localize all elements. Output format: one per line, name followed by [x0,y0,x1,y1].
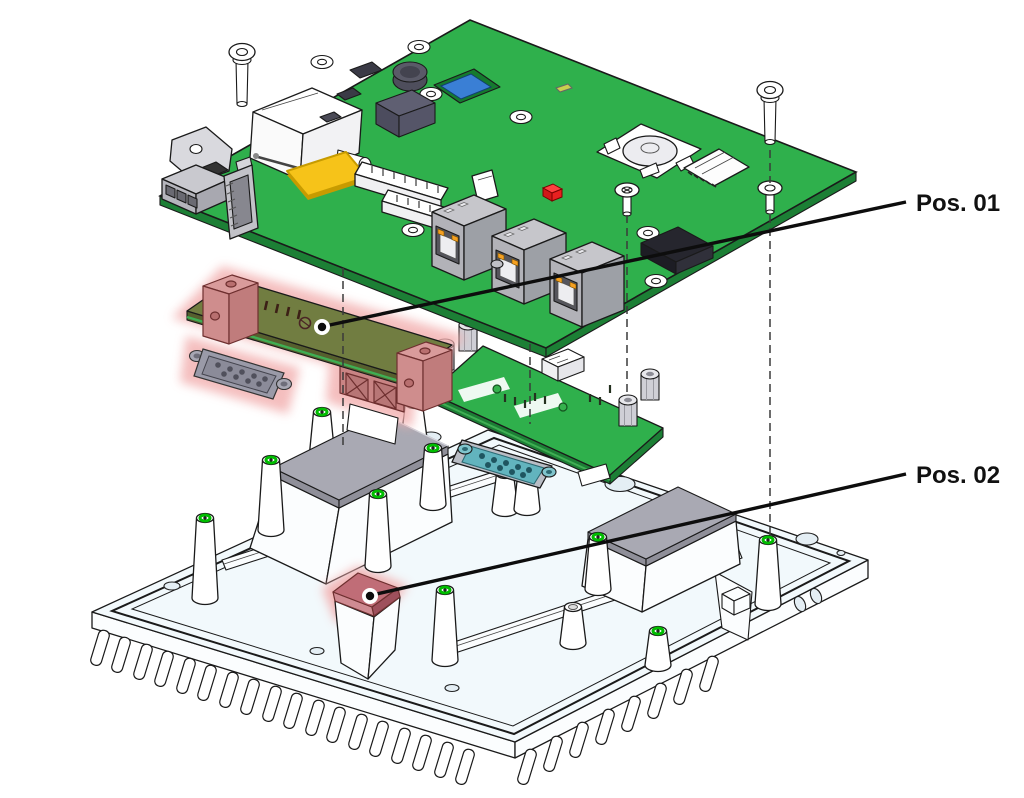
module-bracket-left [203,275,258,344]
exploded-view-figure: Pos. 01 Pos. 02 [0,0,1024,798]
inductor [393,62,427,91]
callout-label-pos02: Pos. 02 [916,462,1000,489]
rj45-port-3 [550,242,624,327]
callout-label-pos01: Pos. 01 [916,190,1000,217]
screw-top-left [229,44,255,107]
leader-dot-pos01-center [318,323,326,331]
module-bracket-right [397,342,452,411]
figure-canvas: Pos. 01 Pos. 02 [0,0,1024,798]
leader-dot-pos02-center [366,592,374,600]
